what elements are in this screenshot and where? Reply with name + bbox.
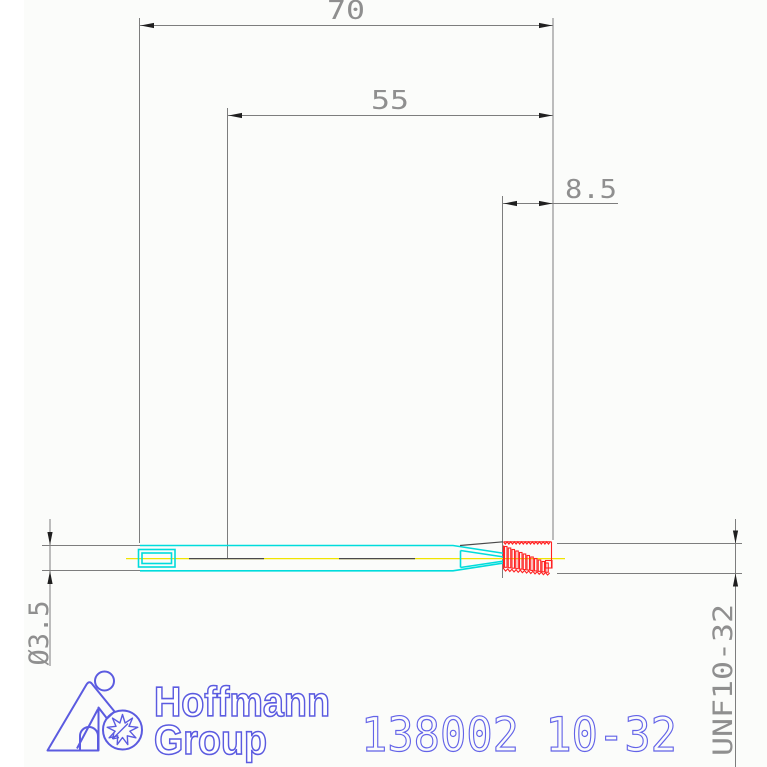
logo-text-line2: Group [154,716,267,763]
cad-drawing-page: 70 55 8.5 Ø3.5 UNF10-32 [0,0,767,767]
part-number-text: 138002 10-32 [361,708,677,763]
technical-drawing: 70 55 8.5 Ø3.5 UNF10-32 [0,0,767,767]
dim-label-8-5: 8.5 [565,175,617,205]
dim-label-55: 55 [371,86,409,116]
dim-label-70: 70 [327,0,365,26]
dim-label-thread-spec: UNF10-32 [708,604,739,756]
dim-label-diameter: Ø3.5 [24,600,55,665]
